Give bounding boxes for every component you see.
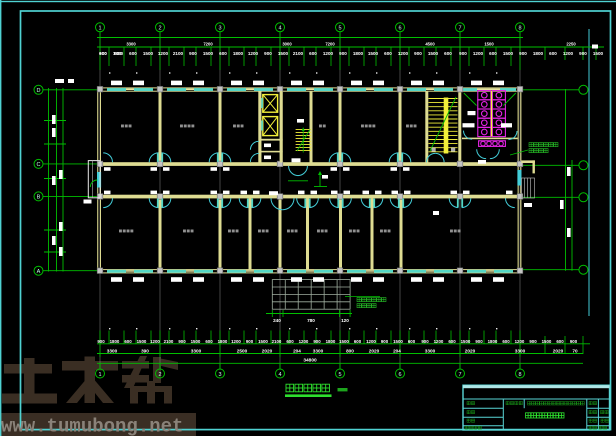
svg-text:780: 780 xyxy=(307,318,315,323)
svg-text:1500: 1500 xyxy=(368,51,379,56)
svg-text:900: 900 xyxy=(339,51,347,56)
svg-text:1500: 1500 xyxy=(203,51,214,56)
svg-text:1500: 1500 xyxy=(503,51,514,56)
svg-text:2020: 2020 xyxy=(553,348,564,353)
svg-text:8: 8 xyxy=(518,26,521,32)
svg-text:1200: 1200 xyxy=(158,51,169,56)
svg-text:D: D xyxy=(37,88,41,94)
svg-text:600: 600 xyxy=(129,51,137,56)
svg-text:2100: 2100 xyxy=(293,51,304,56)
svg-text:600: 600 xyxy=(384,51,392,56)
svg-text:600: 600 xyxy=(549,51,557,56)
svg-text:390: 390 xyxy=(141,348,149,353)
svg-text:1200: 1200 xyxy=(248,51,259,56)
svg-text:800: 800 xyxy=(346,348,354,353)
svg-text:600: 600 xyxy=(444,51,452,56)
svg-text:34800: 34800 xyxy=(303,357,317,363)
svg-text:900: 900 xyxy=(414,51,422,56)
svg-text:1200: 1200 xyxy=(473,51,484,56)
svg-text:3300: 3300 xyxy=(515,348,526,353)
svg-text:6: 6 xyxy=(398,372,401,378)
svg-text:5: 5 xyxy=(338,26,341,32)
svg-text:2100: 2100 xyxy=(173,51,184,56)
svg-text:8: 8 xyxy=(518,372,521,378)
svg-text:C: C xyxy=(37,162,41,168)
svg-text:600: 600 xyxy=(309,51,317,56)
svg-text:7200: 7200 xyxy=(325,42,335,47)
svg-text:3300: 3300 xyxy=(425,348,436,353)
svg-text:900: 900 xyxy=(579,51,587,56)
svg-text:1500: 1500 xyxy=(428,51,439,56)
svg-text:3300: 3300 xyxy=(191,348,202,353)
svg-text:900: 900 xyxy=(519,51,527,56)
svg-text:A: A xyxy=(37,269,41,275)
svg-text:900: 900 xyxy=(264,51,272,56)
svg-text:7: 7 xyxy=(458,372,461,378)
svg-text:6: 6 xyxy=(398,26,401,32)
svg-text:204: 204 xyxy=(293,348,301,353)
svg-text:3: 3 xyxy=(218,372,221,378)
svg-text:1500: 1500 xyxy=(278,51,289,56)
svg-text:5: 5 xyxy=(338,372,341,378)
svg-text:1200: 1200 xyxy=(323,51,334,56)
svg-text:600: 600 xyxy=(99,51,107,56)
svg-text:2020: 2020 xyxy=(369,348,380,353)
svg-text:7: 7 xyxy=(458,26,461,32)
svg-text:2020: 2020 xyxy=(262,348,273,353)
svg-text:2500: 2500 xyxy=(237,348,248,353)
svg-text:1500: 1500 xyxy=(593,51,604,56)
svg-text:900: 900 xyxy=(459,51,467,56)
svg-text:3000: 3000 xyxy=(282,42,292,47)
svg-text:3300: 3300 xyxy=(313,348,324,353)
svg-text:900: 900 xyxy=(114,51,122,56)
svg-text:600: 600 xyxy=(219,51,227,56)
svg-text:1: 1 xyxy=(98,372,101,378)
svg-text:4500: 4500 xyxy=(425,42,435,47)
svg-text:2250: 2250 xyxy=(566,42,576,47)
svg-text:900: 900 xyxy=(189,51,197,56)
svg-text:4: 4 xyxy=(278,26,281,32)
svg-text:2020: 2020 xyxy=(465,348,476,353)
svg-text:1500: 1500 xyxy=(143,51,154,56)
svg-text:1: 1 xyxy=(98,26,101,32)
svg-text:120: 120 xyxy=(341,318,349,323)
svg-text:4: 4 xyxy=(278,372,281,378)
svg-text:204: 204 xyxy=(393,348,401,353)
svg-text:B: B xyxy=(37,195,41,201)
svg-text:70: 70 xyxy=(572,348,578,353)
svg-text:1800: 1800 xyxy=(233,51,244,56)
svg-text:2: 2 xyxy=(158,26,161,32)
svg-text:240: 240 xyxy=(273,318,281,323)
svg-text:www.tumubong.net: www.tumubong.net xyxy=(1,416,183,436)
svg-text:1200: 1200 xyxy=(563,51,574,56)
svg-text:3: 3 xyxy=(218,26,221,32)
svg-text:1500: 1500 xyxy=(484,42,494,47)
svg-text:3300: 3300 xyxy=(107,348,118,353)
svg-text:1800: 1800 xyxy=(533,51,544,56)
svg-text:1800: 1800 xyxy=(353,51,364,56)
svg-text:3300: 3300 xyxy=(126,42,136,47)
svg-text:2: 2 xyxy=(158,372,161,378)
svg-text:600: 600 xyxy=(489,51,497,56)
svg-text:1200: 1200 xyxy=(398,51,409,56)
svg-text:7200: 7200 xyxy=(203,42,213,47)
